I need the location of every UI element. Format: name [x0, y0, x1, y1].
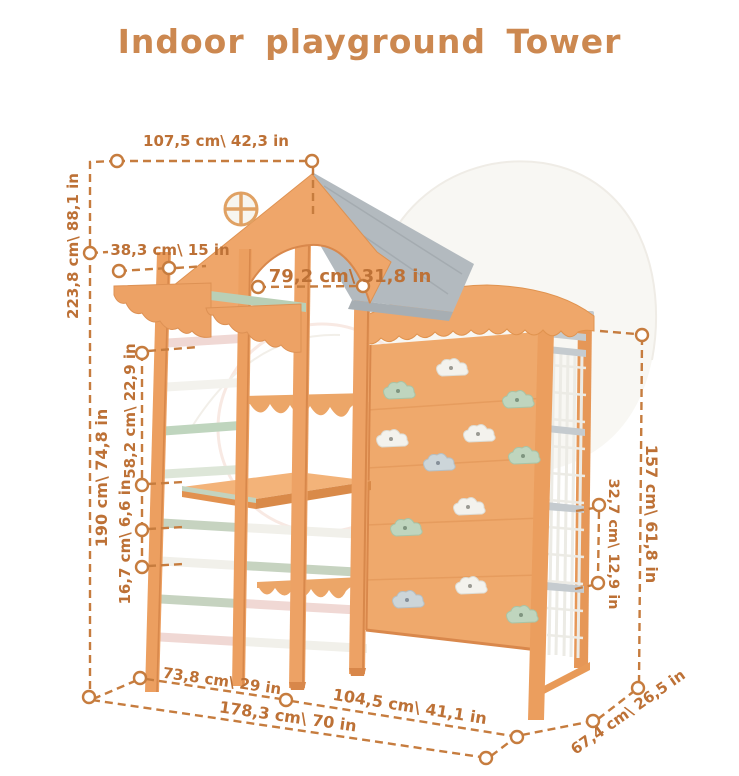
dim-label-overhang: 38,3 cm\ 15 in — [60, 239, 280, 261]
desk — [182, 472, 371, 509]
dim-label-inner-width: 79,2 cm\ 31,8 in — [240, 265, 460, 287]
product-dimension-diagram: Indoor playground Tower 107,5 cm\ 42,3 i… — [0, 0, 739, 776]
climbing-wall — [365, 321, 556, 720]
dim-label-total-height: 223,8 cm\ 88,1 in — [62, 136, 84, 356]
dim-label-top-width: 107,5 cm\ 42,3 in — [106, 130, 326, 152]
page-title: Indoor playground Tower — [0, 22, 739, 61]
dim-label-frame-height: 190 cm\ 74,8 in — [90, 368, 112, 588]
dim-label-right-height: 157 cm\ 61,8 in — [641, 404, 663, 624]
dim-label-net-section: 32,7 cm\ 12,9 in — [602, 434, 624, 654]
gable-window — [225, 193, 257, 225]
dim-label-rung-spacing: 16,7 cm\ 6,6 in — [114, 432, 136, 652]
